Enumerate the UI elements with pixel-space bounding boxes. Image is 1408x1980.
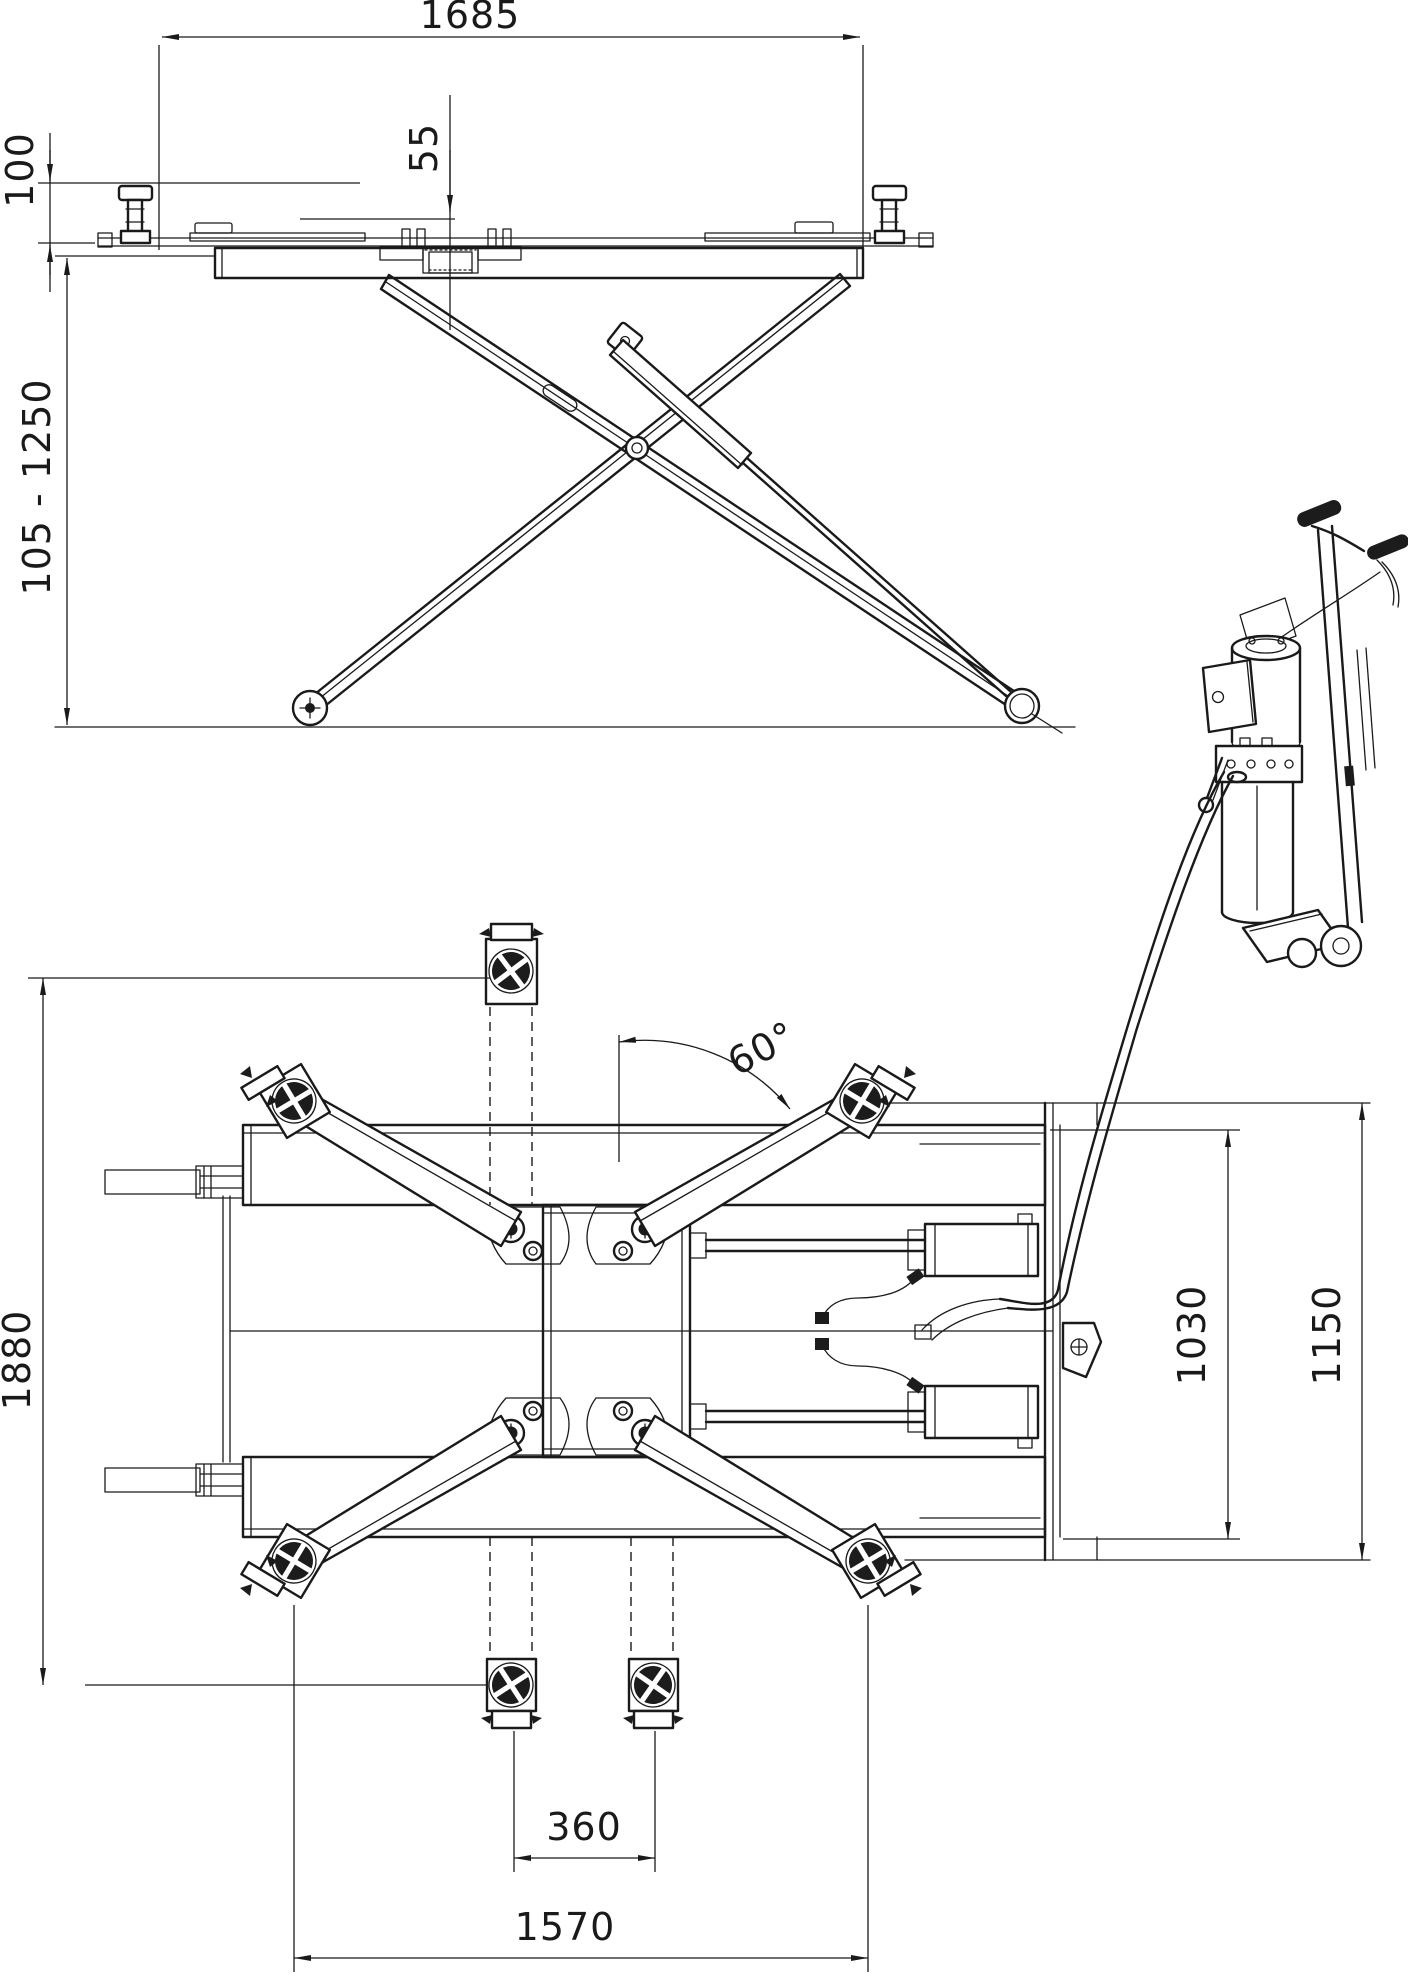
center-pivot [626,437,648,459]
pad-bottom-right [623,1659,684,1728]
scissor-leg-outer [381,275,1026,713]
retracted-pads-bottom [481,1537,684,1728]
technical-drawing-sheet: 1685 55 100 105 - 1250 [0,0,1408,1980]
dim-label-lift-range: 105 - 1250 [15,378,59,595]
dim-label-base-inner-width: 1030 [1170,1285,1214,1386]
dim-pad-height: 100 [0,132,360,292]
screw-pad-right [873,186,906,243]
side-view: 1685 55 100 105 - 1250 [0,0,1075,733]
lift-platform [98,45,933,278]
dim-label-pad-outer-spacing: 1570 [515,1905,616,1949]
hydraulic-hoses [1000,772,1233,1310]
dim-lift-range: 105 - 1250 [15,256,215,725]
dim-pad-inner-spacing: 360 [514,1731,655,1872]
trolley-base [1243,910,1361,967]
plan-view: 60° 1880 1030 1150 360 [0,924,1370,1972]
cylinder-bottom [690,1386,1038,1448]
dim-label-pad-recess: 55 [402,123,446,173]
platform-slide-plates [190,222,870,247]
dim-label-pad-height: 100 [0,132,42,208]
dim-label-arm-angle: 60° [721,1013,804,1085]
trolley-wheel [1321,926,1361,966]
screw-pad-left [119,186,152,243]
scissor-mechanism [293,274,1062,733]
hydraulic-cylinder-side [607,322,1010,696]
trolley-upright [1318,526,1375,928]
left-foot-roller [293,691,327,725]
left-cross-ties [105,1166,243,1496]
pad-bottom-left [481,1659,542,1728]
control-box [1203,660,1256,732]
cylinder-top [690,1214,1038,1276]
stub-axle-top [105,1166,243,1198]
hose-anchor-bracket [1063,1323,1101,1377]
scissor-lift-drawing: 1685 55 100 105 - 1250 [0,0,1408,1980]
dim-label-overall-width: 1880 [0,1310,39,1411]
oil-reservoir [1222,772,1293,923]
hydraulic-power-unit [1000,498,1408,1310]
scissor-leg-inner [305,274,850,714]
dim-label-base-overall-width: 1150 [1305,1285,1349,1386]
dim-platform-length: 1685 [159,0,860,250]
dim-label-pad-inner-spacing: 360 [546,1805,622,1849]
dim-pad-outer-spacing: 1570 [294,1605,868,1972]
dim-pad-recess: 55 [300,95,455,330]
dim-base-overall-width: 1150 [1305,1103,1362,1560]
dim-label-platform-length: 1685 [420,0,521,37]
stub-axle-bottom [105,1464,243,1496]
